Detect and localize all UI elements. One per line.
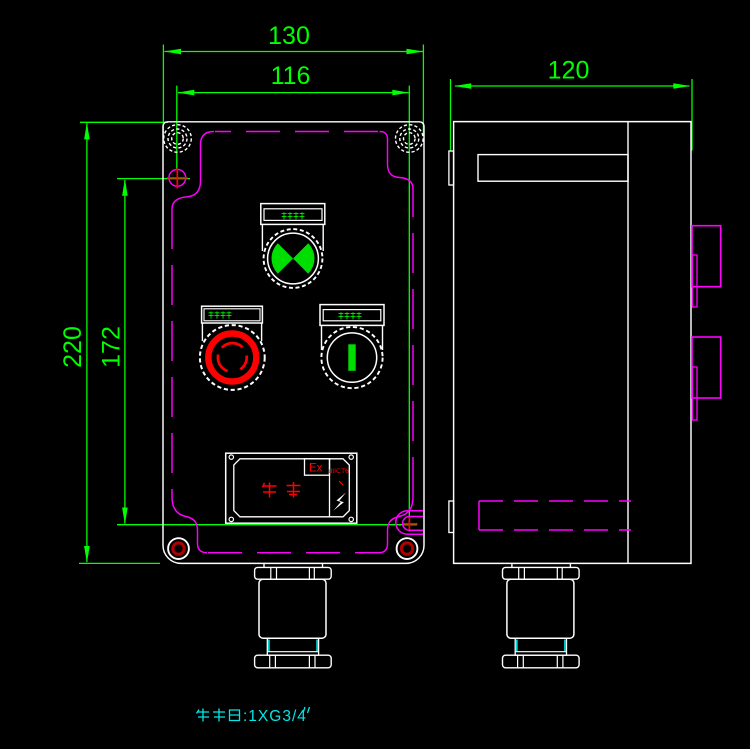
svg-text:120: 120 — [548, 57, 590, 85]
svg-text:220: 220 — [59, 326, 87, 368]
svg-text:116: 116 — [271, 62, 311, 90]
svg-text:130: 130 — [268, 22, 310, 50]
svg-text:172: 172 — [98, 326, 126, 368]
svg-text::1XG3/4: :1XG3/4 — [243, 708, 307, 725]
svg-text:dIICT6: dIICT6 — [329, 468, 350, 475]
svg-text:Ex: Ex — [309, 463, 323, 475]
